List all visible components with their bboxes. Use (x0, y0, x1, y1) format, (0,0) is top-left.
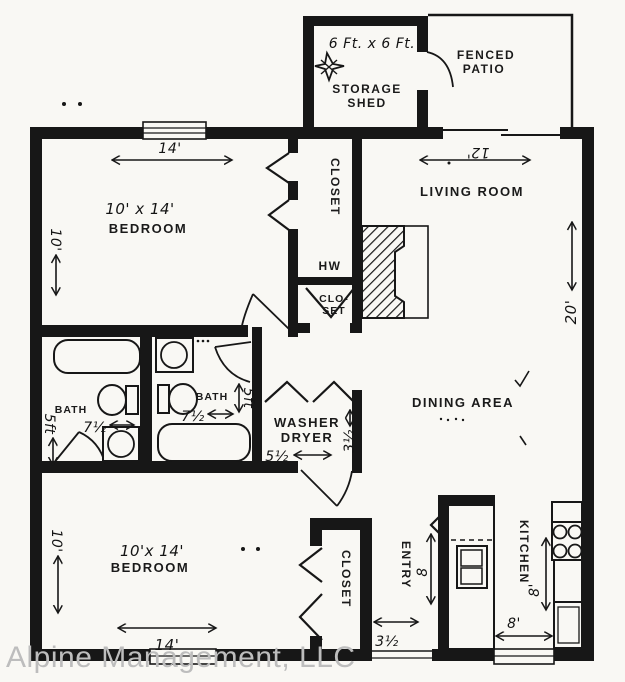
shed-label-line2: SHED (347, 96, 386, 110)
closet-hall-label: CLOSET (328, 158, 342, 216)
kitchen-width-dim: 8' (507, 616, 521, 632)
bath-left-door (53, 432, 105, 464)
closet-bottom-bifold-upper (300, 548, 322, 582)
small-closet-line1: CLO- (319, 293, 349, 305)
sink-right (156, 338, 193, 372)
bedroom-top-depth-dim: 10' (47, 228, 63, 251)
bedroom-top-door (241, 294, 291, 331)
bedroom-bottom-depth-dim: 10' (48, 529, 64, 552)
bath-left-width-dim: 7½ (83, 420, 106, 436)
bedroom-top-window (143, 122, 206, 139)
kitchen-counter-top (552, 502, 582, 522)
bath-left-depth-dim: 5ft (41, 414, 57, 435)
fireplace (362, 226, 428, 318)
sliding-door (443, 130, 560, 135)
patio-label-line1: FENCED (457, 48, 515, 62)
closet-bottom-bifold-lower (300, 594, 322, 640)
bathtub-left (54, 340, 140, 373)
watermark-text: Alpine Management, LLC (6, 641, 356, 674)
living-room-width-dim: 12' (466, 144, 489, 160)
bath-left-label: BATH (55, 404, 87, 416)
shed-wall-right-upper (417, 16, 428, 52)
laundry-depth-dim: 3½ (342, 429, 358, 452)
shed-wall-top (303, 16, 428, 26)
bedroom-bottom-size-label: 10'x 14' (120, 542, 184, 560)
bathtub-right (158, 424, 250, 461)
bath-right-door (215, 342, 251, 382)
water-heater-label: HW (319, 259, 342, 273)
shed-wall-left (303, 16, 314, 128)
laundry-bifold-left (265, 382, 308, 402)
right-wall (582, 127, 594, 661)
entry-door-dim: 3½ (375, 634, 398, 650)
bedroom-bottom-door (301, 470, 352, 506)
laundry-bifold-right (313, 382, 354, 402)
living-room-depth-dim: 20' (562, 300, 580, 325)
refrigerator (457, 546, 487, 588)
bedroom-bottom-label: BEDROOM (111, 560, 189, 575)
entry-label: ENTRY (399, 541, 413, 589)
top-wall-mid (206, 127, 443, 139)
kitchen-depth-dim: 8' (527, 583, 543, 597)
left-wall (30, 127, 42, 661)
storage-shed (303, 16, 453, 128)
toilet-left (98, 385, 138, 415)
laundry-width-dim: 5½ (265, 449, 288, 465)
north-compass-icon (315, 53, 344, 80)
shed-dimension-label: 6 Ft. x 6 Ft. (329, 36, 415, 52)
kitchen-label: KITCHEN (517, 520, 531, 584)
small-closet-line2: SET (322, 305, 345, 317)
bath-right-label: BATH (196, 391, 228, 403)
bedroom-top-label: BEDROOM (109, 221, 187, 236)
shed-door-arc (427, 52, 453, 87)
floorplan-page: 6 Ft. x 6 Ft. STORAGE SHED FENCED PATIO … (0, 0, 625, 682)
floorplan-drawing: 6 Ft. x 6 Ft. STORAGE SHED FENCED PATIO … (0, 0, 625, 682)
shed-label-line1: STORAGE (332, 82, 402, 96)
top-wall-left (30, 127, 143, 139)
bath-left-fixtures (54, 340, 140, 461)
bedroom-top-size-label: 10' x 14' (105, 200, 174, 218)
kitchen-window (494, 649, 554, 664)
sink-left (103, 427, 139, 461)
closet-bifold-lower (269, 200, 289, 230)
bath-right-width-dim: 7½ (181, 409, 204, 425)
living-room-label: LIVING ROOM (420, 184, 524, 199)
kitchen-sink (554, 602, 582, 648)
laundry-line1: WASHER (274, 415, 340, 430)
entry-depth-dim: 8 (415, 567, 431, 576)
shed-wall-right-lower (417, 90, 428, 128)
stove (552, 522, 582, 560)
laundry-line2: DRYER (281, 430, 334, 445)
patio-label-line2: PATIO (463, 62, 505, 76)
closet-bottom-label: CLOSET (339, 550, 353, 608)
front-door-opening (372, 651, 432, 658)
closet-bifold-upper (267, 153, 289, 183)
kitchen-counter-right (554, 560, 582, 602)
dining-label: DINING AREA (412, 395, 514, 410)
bedroom-top-width-dim: 14' (158, 141, 181, 157)
bath-right-depth-dim: 5ft (240, 388, 256, 409)
